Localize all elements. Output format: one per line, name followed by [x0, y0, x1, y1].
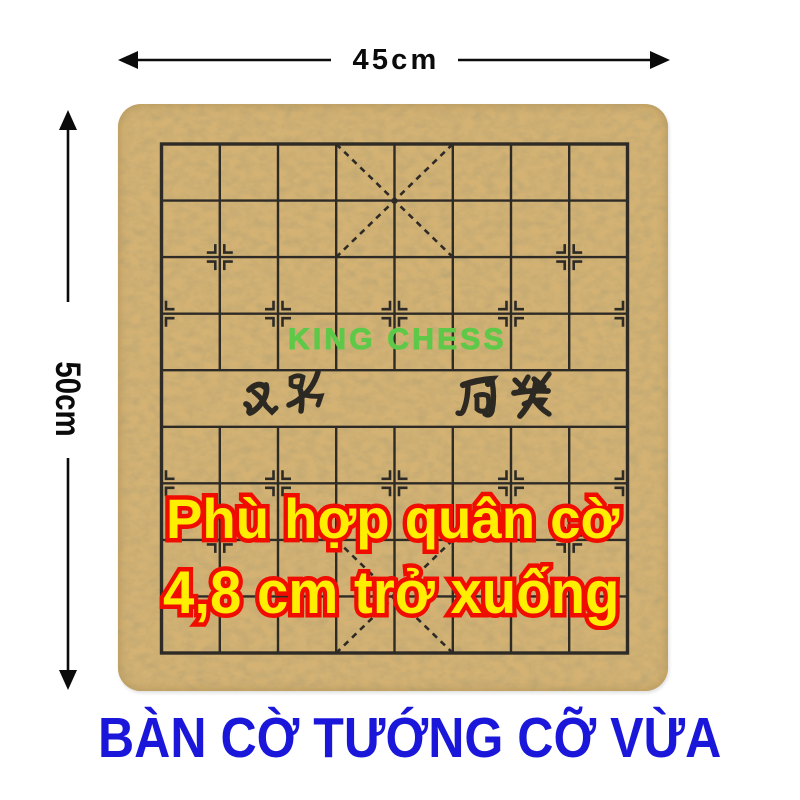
svg-text:45cm: 45cm	[353, 44, 440, 76]
